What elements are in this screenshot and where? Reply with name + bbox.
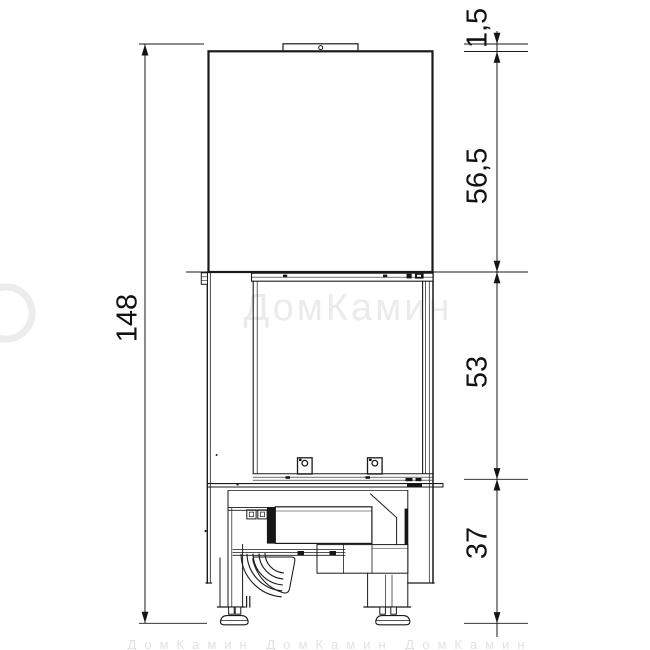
dim-label-hood-height: 56,5 [461,148,493,204]
watermark-logo-circle [0,287,32,339]
control-switches [228,507,275,544]
watermark: ДомКамин ДомКамин ДомКамин ДомКамин [0,287,533,650]
lower-housing [317,545,408,574]
hood-panel [209,51,433,272]
technical-drawing: ДомКамин ДомКамин ДомКамин ДомКамин [0,0,650,650]
dim-label-total-height: 148 [111,294,143,342]
door-bottom-rails [216,454,433,486]
right-leg [364,573,411,607]
adjustable-foot-left [220,607,248,625]
dim-label-base-height: 37 [461,527,493,559]
technical-drawing-page: ДомКамин ДомКамин ДомКамин ДомКамин [0,0,650,650]
base-top-plate [207,484,443,491]
door-clip-left [298,458,313,474]
door-clip-right [368,458,383,474]
ash-pan [275,494,396,545]
watermark-footer-text: ДомКамин ДомКамин ДомКамин [127,637,532,650]
door-top-rail [252,273,434,281]
damper-flap [253,557,295,593]
left-leg [218,491,250,607]
handle-bar [405,509,408,546]
dim-label-collar-height: 1,5 [461,8,493,48]
collar-hole-icon [319,46,323,50]
watermark-text: ДомКамин [243,287,452,329]
adjustable-foot-right [376,607,410,625]
left-side-wall [204,272,211,583]
wall-bracket [201,273,207,285]
dim-label-firebox-height: 53 [461,356,493,388]
fireplace-body [201,44,443,625]
